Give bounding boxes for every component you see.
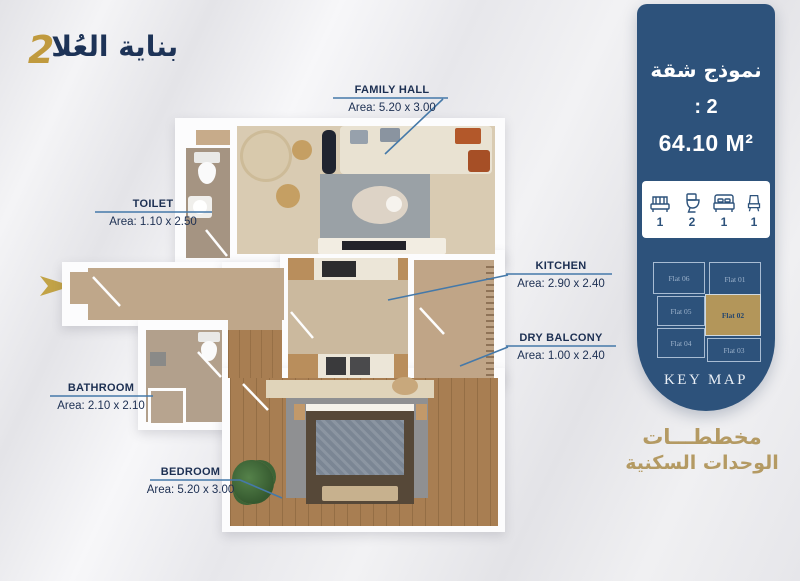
room-area: Area: 5.20 x 3.00 [333,102,451,115]
dining-table [240,130,292,182]
room-area: Area: 2.10 x 2.10 [45,400,157,413]
keymap-flat-03: Flat 03 [707,338,761,362]
model-title: نموذج شقة [637,58,775,82]
room-area: Area: 1.00 x 2.40 [502,350,620,363]
keymap-flat-01: Flat 01 [709,262,761,296]
keymap-flat-02-highlighted: Flat 02 [705,294,761,336]
dining-chair [276,184,300,208]
bed-foot-bench [322,486,398,501]
bathroom-label: BATHROOM Area: 2.10 x 2.10 [45,382,157,413]
room-name: BATHROOM [45,382,157,394]
flyer-page: بناية العُلا2 [0,0,800,581]
keymap-flat-04: Flat 04 [657,328,705,358]
bed-icon [711,191,737,215]
dresser-decor [392,377,418,395]
tv [342,241,406,250]
sofa-icon [647,191,673,215]
stat-chair: 1 [743,191,765,228]
bath-mat [150,352,166,366]
footer-line1: مخططـــات [602,424,800,451]
keymap-flat-05: Flat 05 [657,296,705,326]
stat-count: 1 [657,216,664,228]
nightstand [294,404,305,420]
kitchen-cabinet [398,258,408,280]
balcony-hatch-texture [486,262,494,376]
stat-sofa: 1 [647,191,673,228]
bed-blanket [316,420,404,475]
unit-area-value: 64.10 M² [637,130,775,157]
room-area: Area: 5.20 x 3.00 [128,484,253,497]
footer-caption: مخططـــات الوحدات السكنية [602,424,800,476]
sofa-pillow [468,150,490,172]
toilet-icon [679,191,705,215]
stat-count: 1 [751,216,758,228]
room-name: BEDROOM [128,466,253,478]
sofa-pillow [455,128,481,144]
room-name: DRY BALCONY [502,332,620,344]
service-shaft [196,130,230,145]
bed-headboard [306,404,414,411]
hall-floor [228,268,282,330]
kitchen-cabinet [394,354,408,378]
nightstand [416,404,427,420]
info-panel: نموذج شقة : 2 64.10 M² 1 [637,4,775,411]
kitchen-cabinet [288,258,314,280]
model-number: : 2 [637,96,775,119]
room-name: FAMILY HALL [333,84,451,96]
room-area: Area: 2.90 x 2.40 [506,278,616,291]
kitchen-appliance [350,357,370,375]
keymap-flat-06: Flat 06 [653,262,705,294]
footer-line2: الوحدات السكنية [602,451,800,476]
room-stats-box: 1 2 [642,181,770,238]
sofa-pillow [380,128,400,142]
room-area: Area: 1.10 x 2.50 [92,216,214,229]
toilet-label: TOILET Area: 1.10 x 2.50 [92,198,214,229]
dry-balcony-label: DRY BALCONY Area: 1.00 x 2.40 [502,332,620,363]
brand-logo: بناية العُلا2 [8,28,198,72]
hall-wood-floor [228,330,282,378]
brand-logo-title: بناية العُلا [51,30,178,63]
dining-chair [292,140,312,160]
stat-toilet: 2 [679,191,705,228]
lounge-chair [322,130,336,174]
sofa-pillow [350,130,368,144]
room-name: TOILET [92,198,214,210]
key-map: Flat 06 Flat 01 Flat 05 Flat 02 Flat 04 … [653,262,759,360]
bedroom-label: BEDROOM Area: 5.20 x 3.00 [128,466,253,497]
stat-count: 1 [721,216,728,228]
key-map-title: KEY MAP [637,372,775,389]
kitchen-cabinet [288,354,318,378]
decor-plate [386,196,402,212]
family-hall-label: FAMILY HALL Area: 5.20 x 3.00 [333,84,451,115]
stat-bed: 1 [711,191,737,228]
kitchen-label: KITCHEN Area: 2.90 x 2.40 [506,260,616,291]
cooktop [322,261,356,277]
kitchen-appliance [326,357,346,375]
dry-balcony-floor [414,260,494,378]
entrance-doorway [70,272,90,304]
room-name: KITCHEN [506,260,616,272]
chair-icon [743,191,765,215]
stat-count: 2 [689,216,696,228]
